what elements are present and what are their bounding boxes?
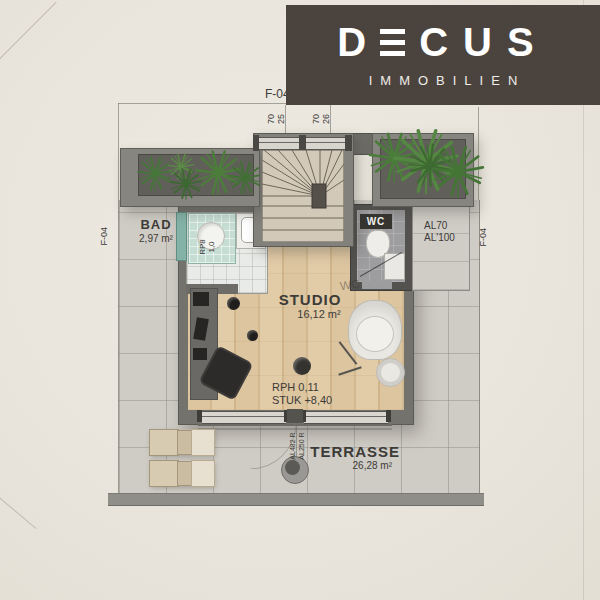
bad-area: 2,97 m²: [124, 233, 188, 245]
lounger-backrest: [149, 429, 179, 456]
plants-left-icon: [128, 146, 260, 206]
top-window-left: [258, 137, 299, 150]
section-mark-right: F-04: [478, 222, 488, 252]
door-line1: AL482 R: [288, 426, 297, 466]
terrace-curb: [108, 493, 484, 506]
bottom-window-left: [202, 411, 286, 424]
level-stuk: STUK +8,40: [272, 394, 332, 407]
door-annotation: AL482 R AL250 R: [288, 426, 306, 466]
studio-area: 16,12 m²: [270, 308, 350, 321]
window-post: [345, 135, 352, 151]
sun-lounger: [149, 460, 213, 485]
shower-annotation: RP8 1,0: [198, 232, 216, 262]
shower-line2: 1,0: [207, 232, 216, 262]
bottom-window-right: [304, 411, 388, 424]
brand-letter-d: D: [337, 22, 366, 62]
window-dim-left-h: 25: [276, 104, 286, 134]
dimension-line: [118, 103, 286, 104]
section-mark-left: F-04: [99, 221, 109, 251]
window-dim-right-w: 70: [311, 104, 321, 134]
vent-label: AL70 AL'100: [424, 220, 455, 243]
pendant-lamp-icon: [227, 297, 240, 310]
vent-label-line1: AL70: [424, 220, 455, 232]
window-dim-left-w: 70: [266, 104, 276, 134]
window-post: [197, 410, 202, 422]
studio-name: STUDIO: [270, 291, 350, 308]
level-annotation: RPH 0,11 STUK +8,40: [272, 381, 332, 406]
wc-floor-mark: WC: [339, 278, 361, 294]
side-table-round: [376, 358, 405, 387]
window-post: [299, 135, 306, 151]
console-object: [193, 292, 209, 306]
door-mullion: [287, 409, 303, 423]
brand-subtitle: IMMOBILIEN: [361, 73, 526, 88]
level-rph: RPH 0,11: [272, 381, 332, 394]
wc-door-opening: [362, 281, 392, 289]
window-dim-left: 70 25: [266, 104, 286, 134]
lounger-foot: [191, 429, 215, 456]
vent-niche: [412, 204, 470, 291]
window-dim-right: 70 26: [311, 104, 331, 134]
bad-label: BAD 2,97 m²: [124, 218, 188, 244]
pendant-lamp-icon: [247, 330, 258, 341]
brand-e-bars-icon: [380, 29, 405, 56]
lounger-foot: [191, 460, 215, 487]
window-post: [386, 410, 391, 422]
armchair-seat: [356, 316, 394, 352]
terrasse-name: TERRASSE: [305, 443, 400, 460]
console-object: [193, 348, 207, 360]
shower-line1: RP8: [198, 232, 207, 262]
studio-label: STUDIO 16,12 m²: [270, 291, 350, 321]
brand-letters-cus: CUS: [419, 22, 548, 62]
logo-banner: D CUS IMMOBILIEN: [286, 5, 600, 105]
lounger-backrest: [149, 460, 179, 487]
terrasse-area: 26,28 m²: [305, 460, 400, 472]
window-dim-right-h: 26: [321, 104, 331, 134]
top-window-right: [306, 137, 345, 150]
staircase-treads: [262, 150, 344, 242]
dimension-line: [118, 103, 119, 200]
sun-lounger: [149, 429, 213, 454]
plants-right-icon: [366, 126, 481, 212]
brand-wordmark: D CUS: [337, 22, 548, 62]
terrasse-label: TERRASSE 26,28 m²: [305, 443, 400, 472]
wc-room-label: WC: [360, 214, 392, 229]
door-line2: AL250 R: [297, 426, 306, 466]
bad-name: BAD: [124, 218, 188, 233]
side-stool: [293, 357, 311, 375]
vent-label-line2: AL'100: [424, 232, 455, 244]
